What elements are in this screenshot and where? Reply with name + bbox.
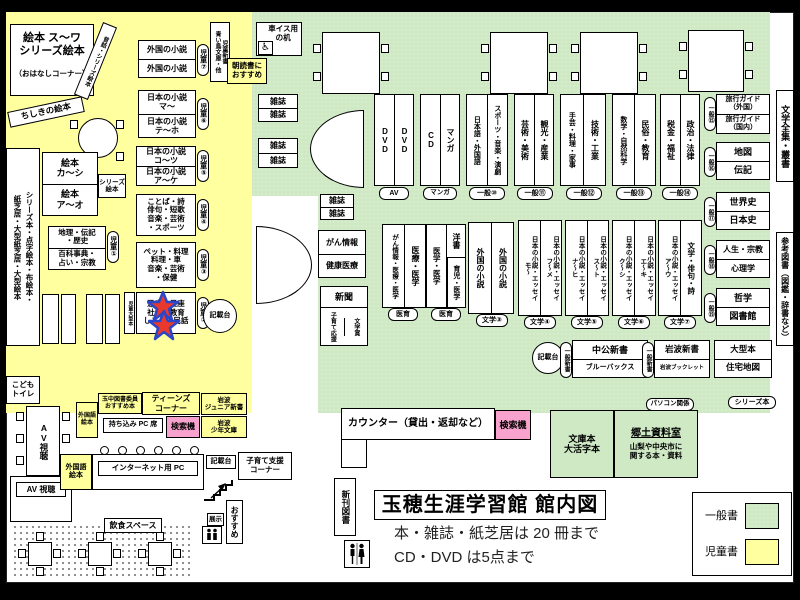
shelf-row: 新聞 [321,287,367,307]
shelf-tamachu-recommend: 玉中図書委員 おすすめ本 [98,393,142,414]
circulation-counter: カウンター（貸出・返却など） [341,408,495,440]
page-title: 玉穂生涯学習館 館内図 [374,490,606,520]
shelf-row: 健康医療 [319,254,365,278]
tag-ippan-18: 一般⑱ [704,245,716,275]
ohanashi-corner-label: （おはなしコーナー） [15,70,90,79]
library-floor-map-page: { "colors":{"children_bg":"#FFFF9C","gen… [0,0,800,600]
restroom-icon [344,540,370,568]
shelf-row: がん情報 [319,231,365,254]
shelf-chuko-bluebacks: 中公新書 ブルーバックス [572,340,648,378]
chair [62,412,70,421]
chair [16,434,24,443]
shelf-column: 技術・工業 [583,95,606,185]
chair [116,152,124,161]
shelf-row: 外国の小説 [139,41,195,59]
shelf-cd-manga: CD マンガ [420,94,460,186]
paperback-large-print-room: 文庫本 大活字本 [550,410,614,478]
tag-ippan-10: 一般⑩ [469,187,505,200]
kosodate-ouen-label: 子育て応援 [321,312,344,342]
search-terminal: 検索機 [166,416,200,438]
elevator-icon [202,526,222,544]
shelf-geography-encyclopedia: 地理・伝記 ・歴史 百科事典・ 占い・宗教 [48,226,106,270]
legend: 一般書 児童書 [692,492,792,576]
shelf-column: 観光・産業 [534,95,554,185]
chair [381,72,389,81]
shelf-column: 芸術・美術 [515,95,534,185]
chair [571,72,579,81]
shelf-newspaper: 新聞 子育て応援 文学賞 [320,286,368,346]
tag-bungaku-4: 文学④ [524,316,556,329]
shelf-column: DVD [375,95,394,185]
childcare-support-corner: 子育て支援 コーナー [238,452,292,480]
shelf-unit [86,294,103,344]
tag-ippan-13: 一般⑬ [616,187,652,200]
tag-medical: 医育 [431,308,461,321]
shelf-medical-2: 医学・医学 洋書 育児・医学 [426,224,466,308]
shelf-row: 地図 [717,143,769,161]
shelf-world-japan-history: 世界史 日本史 [716,192,770,230]
shelf-magazines: 雑誌 雑誌 [258,138,298,168]
shelf-japanese-novels-a-tsu: 日本の小説 コ～ツ 日本の小説 ア～ケ [136,146,196,186]
av-viewing-label: AV 視聴 [16,482,66,497]
shelf-column: 民俗・教育 [634,95,656,185]
shelf-row: 心理学 [717,259,769,278]
shelf-foreign-novels-children: 外国の小説 外国の小説 [138,40,196,78]
shelf-column-split: 洋書 育児・医学 [446,225,466,307]
shelf-maps-biographies: 地図 伝記 [716,142,770,180]
chair [481,44,489,53]
chair [113,549,121,558]
shelf-column: 日本の小説・エッセイ ス～ト [587,221,609,315]
tag-manga: マンガ [423,187,457,200]
shelf-column: 数学・自然科学 [613,95,634,185]
tag-jido-7: 児童⑦ [197,44,209,76]
shelf-japanese-novels-essays-na: 日本の小説・エッセイ ナ～ヒ 日本の小説・エッセイ ス～ト [565,220,609,316]
local-room-desc: 山梨や中央市に 関する本・資料 [630,443,683,460]
shelf-column: DVD [394,95,414,185]
legend-row-children: 児童書 [705,539,779,565]
chair [679,70,687,79]
shelf-unit [42,294,59,344]
chair [481,72,489,81]
shelf-column: 医療・医学 [404,225,426,307]
chair [549,72,557,81]
tag-jido-4: 児童④ [197,199,209,231]
writing-desk: 記載台 [203,299,237,333]
chair [53,549,61,558]
tag-ippan-15: 一般⑮ [704,97,716,131]
chair [62,434,70,443]
legend-general-label: 一般書 [705,510,738,523]
shelf-row: 雑誌 [321,195,353,207]
kids-toilet: こども トイレ [6,376,40,404]
tag-jido-5: 児童⑤ [197,150,209,182]
legend-children-swatch [745,539,779,565]
reading-table [322,32,380,94]
chair [313,72,321,81]
byod-pc-seats: 持ち込み PC 席 [103,418,163,433]
tag-ippan-12: 一般⑫ [566,187,602,200]
shelf-row: 哲学 [717,289,769,307]
food-table [28,542,52,566]
chair [679,42,687,51]
writing-desk: 記載台 [206,455,236,469]
shelf-row: 日本の小説 ア～ケ [137,166,195,186]
chair [18,549,26,558]
tag-ippan-19: 一般⑲ [704,293,716,323]
chair [36,567,44,576]
tag-ippan-17: 一般⑰ [704,197,716,227]
reading-table [490,32,548,94]
shelf-science-education: 数学・自然科学 民俗・教育 [612,94,656,186]
shelf-row: 日本の小説 マ～ [139,91,195,114]
shelf-column: 日本の小説・エッセイ フ～メ [540,221,562,315]
shelf-row: 中公新書 [573,341,647,359]
shelf-column: 日本の小説・エッセイ ク～シ [613,221,634,315]
tag-bungaku-7: 文学⑦ [664,316,696,329]
chair [639,72,647,81]
teens-corner: ティーンズ コーナー [142,392,200,415]
chair [78,549,86,558]
shelf-column: スポーツ・音楽・演劇 [487,95,508,185]
chair [313,44,321,53]
shelf-unit [105,294,120,344]
shelf-label: 絵本 ス～ワ シリーズ絵本 [19,32,84,57]
shelf-column: 日本の小説・エッセイ モ～ [519,221,540,315]
shelf-large-books-housing-maps: 大型本 住宅地図 [714,340,772,378]
shelf-cell: 育児・医学 [447,257,466,307]
chair [549,44,557,53]
shelf-row: 大型本 [715,341,771,359]
shelf-crafts-technology: 手芸・料理・家事 技術・工業 [560,94,606,186]
tag-bungaku-3: 文学③ [476,314,508,327]
children-large-books-label: 児童大型本 [124,292,135,334]
morning-reading-recommend-label: 朝読書に おすすめ [227,58,267,84]
shelf-iwanami-shonen-bunko: 岩波 少年文庫 [201,416,247,438]
recommended-display-shelf: おすすめ [226,500,243,544]
chair [138,549,146,558]
shelf-column: 日本語・外国語 [467,95,487,185]
shelf-foreign-language-picture-books: 外国語 絵本 [60,454,92,490]
search-terminal: 検索機 [495,410,531,440]
shelf-row: 旅行ガイド （外国） [717,95,769,114]
chair [96,532,104,541]
chair [173,549,181,558]
shelf-philosophy-library: 哲学 図書館 [716,288,770,326]
shelf-literature-collections: 文学全集・叢書 [776,90,794,182]
shelf-pets-cooking-health: ペット・料理 料理・車 音楽・芸術 ・保健 [136,242,196,288]
shelf-cell: 洋書 [447,225,466,257]
shelf-japanese-novels-essays-a: 日本の小説・エッセイ ア～ウ 文学・俳句・詩 [658,220,702,316]
shelf-row: 子育て応援 文学賞 [321,307,367,345]
shelf-foreign-novels: 外国の小説 外国の小説 [468,222,514,314]
shelf-column: 医学・医学 [427,225,446,307]
tag-ippan-16: 一般⑯ [704,147,716,177]
chair [36,532,44,541]
shelf-column: 手芸・料理・家事 [561,95,583,185]
shelf-foreign-language-picture-books: 外国語 絵本 [76,402,98,438]
shelf-column: マンガ [440,95,460,185]
shelf-row: 人生・宗教 [717,241,769,259]
shelf-row: 雑誌 [321,207,353,220]
shelf-column: CD [421,95,440,185]
shelf-japanese-novels-essays-mo: 日本の小説・エッセイ モ～ 日本の小説・エッセイ フ～メ [518,220,562,316]
shelf-row: 世界史 [717,193,769,211]
legend-children-label: 児童書 [705,546,738,559]
shelf-row: 図書館 [717,307,769,326]
tag-medical: 医育 [388,308,418,321]
shelf-column: 日本の小説・エッセイ エ～キ [634,221,656,315]
shelf-row: 絵本 カ～シ [43,153,97,184]
internet-pc-label: インターネット用 PC [98,461,198,476]
chair [381,44,389,53]
shelf-row: 日本の小説 コ～ツ [137,147,195,166]
display-label: 展示 [207,513,224,526]
shelf-reference-books: 参考図書（図鑑・辞書など） [776,232,794,346]
shelf-dvd: DVD DVD [374,94,414,186]
wheelchair-icon: ♿ [258,41,273,55]
shelf-magazines: 雑誌 雑誌 [258,94,298,122]
shelf-row: 旅行ガイド （国内） [717,114,769,134]
shelf-row: 外国の小説 [139,59,195,78]
shelf-japanese-novels-essays-ku: 日本の小説・エッセイ ク～シ 日本の小説・エッセイ エ～キ [612,220,656,316]
lending-rule-av: CD・DVD は5点まで [394,546,644,566]
shelf-column: がん情報・医療・医学 [383,225,404,307]
shelf-row: 岩波ブックレット [655,359,709,378]
tag-bungaku-6: 文学⑥ [618,316,650,329]
shelf-language-sports-music: 日本語・外国語 スポーツ・音楽・演劇 [466,94,508,186]
shelf-column: 税金・福祉 [661,95,680,185]
tag-jido-1: 児童① [107,231,119,263]
chair [571,44,579,53]
shelf-row: 雑誌 [259,139,297,153]
food-table [88,542,112,566]
legend-row-general: 一般書 [705,503,779,529]
shelf-row: 日本の小説 テ～ホ [139,114,195,138]
reading-table [688,30,744,92]
shelf-row: 伝記 [717,161,769,180]
new-books-shelf: 新刊図書 [334,478,356,536]
legend-general-swatch [745,503,779,529]
food-table [148,542,172,566]
lending-rule-books: 本・雑誌・紙芝居は 20 冊まで [394,522,644,542]
shelf-magazines: 雑誌 雑誌 [320,194,354,220]
shelf-row: ブルーバックス [573,359,647,378]
shelf-medical-1: がん情報・医療・医学 医療・医学 [382,224,426,308]
reading-table [580,32,638,94]
tag-series-books: シリーズ本 [728,396,776,409]
chair [745,42,753,51]
tag-shinsho: 一般新書 [642,342,654,378]
shelf-row: 雑誌 [259,95,297,108]
chair [156,567,164,576]
shelf-column: 外国の小説 [491,223,514,313]
shelf-travel-guides: 旅行ガイド （外国） 旅行ガイド （国内） [716,94,770,134]
shelf-tax-politics: 税金・福祉 政治・法律 [660,94,700,186]
chair [156,532,164,541]
shelf-column: 外国の小説 [469,223,491,313]
shelf-row: 雑誌 [259,153,297,168]
shelf-column: 日本の小説・エッセイ ア～ウ [659,221,680,315]
shelf-art-tourism: 芸術・美術 観光・産業 [514,94,554,186]
chair [70,120,78,129]
chair [116,120,124,129]
chair [745,70,753,79]
star-marker [148,309,180,341]
shelf-japanese-novels-ma-ho: 日本の小説 マ～ 日本の小説 テ～ホ [138,90,196,138]
tag-ippan-14: 一般⑭ [662,187,698,200]
chair [639,44,647,53]
tag-series-picture-books: シリーズ 絵本 [98,174,126,198]
tag-bungaku-5: 文学⑤ [571,316,603,329]
local-room-title: 郷土資料室 [631,428,681,440]
tag-ippan-11: 一般⑪ [517,187,553,200]
tag-jido-3: 児童③ [197,249,209,281]
shelf-row: 日本史 [717,211,769,230]
shelf-column: 日本の小説・エッセイ ナ～ヒ [566,221,587,315]
shelf-series-braille-kamishibai: シリーズ本・点字絵本・布絵本・ 紙芝居・大型紙芝居・大型絵本 [6,148,40,346]
shelf-life-religion-psychology: 人生・宗教 心理学 [716,240,770,278]
av-viewing-table: AV視聴 [26,406,60,476]
shelf-iwanami-junior: 岩波 ジュニア新書 [201,393,247,415]
shelf-column: 政治・法律 [680,95,700,185]
chair [16,456,24,465]
shelf-row: 住宅地図 [715,359,771,378]
shelf-row: 絵本 ア～オ [43,184,97,216]
eating-space-label: 飲食スペース [104,518,162,533]
shelf-language-poetry-sports: ことば・詩 俳句・短歌 音楽・芸術 ・スポーツ [136,194,196,236]
shelf-picture-books-a-shi: 絵本 カ～シ 絵本 ア～オ [42,152,98,216]
bungakusho-label: 文学賞 [344,318,368,336]
tag-jido-6: 児童⑥ [197,98,209,130]
chair [96,567,104,576]
chair [16,412,24,421]
local-materials-room: 郷土資料室 山梨や中央市に 関する本・資料 [614,410,698,478]
shelf-row: 百科事典・ 占い・宗教 [49,248,105,270]
shelf-row: 雑誌 [259,108,297,122]
shelf-cancer-health-info: がん情報 健康医療 [318,230,366,278]
shelf-iwanami-shinsho: 岩波新書 岩波ブックレット [654,340,710,378]
shelf-row: 岩波新書 [655,341,709,359]
tag-av: AV [379,187,409,200]
shelf-unit [61,294,76,344]
shelf-column: 文学・俳句・詩 [680,221,702,315]
tag-shinsho: 一般新書 [560,342,572,378]
shelf-row: 地理・伝記 ・歴史 [49,227,105,248]
